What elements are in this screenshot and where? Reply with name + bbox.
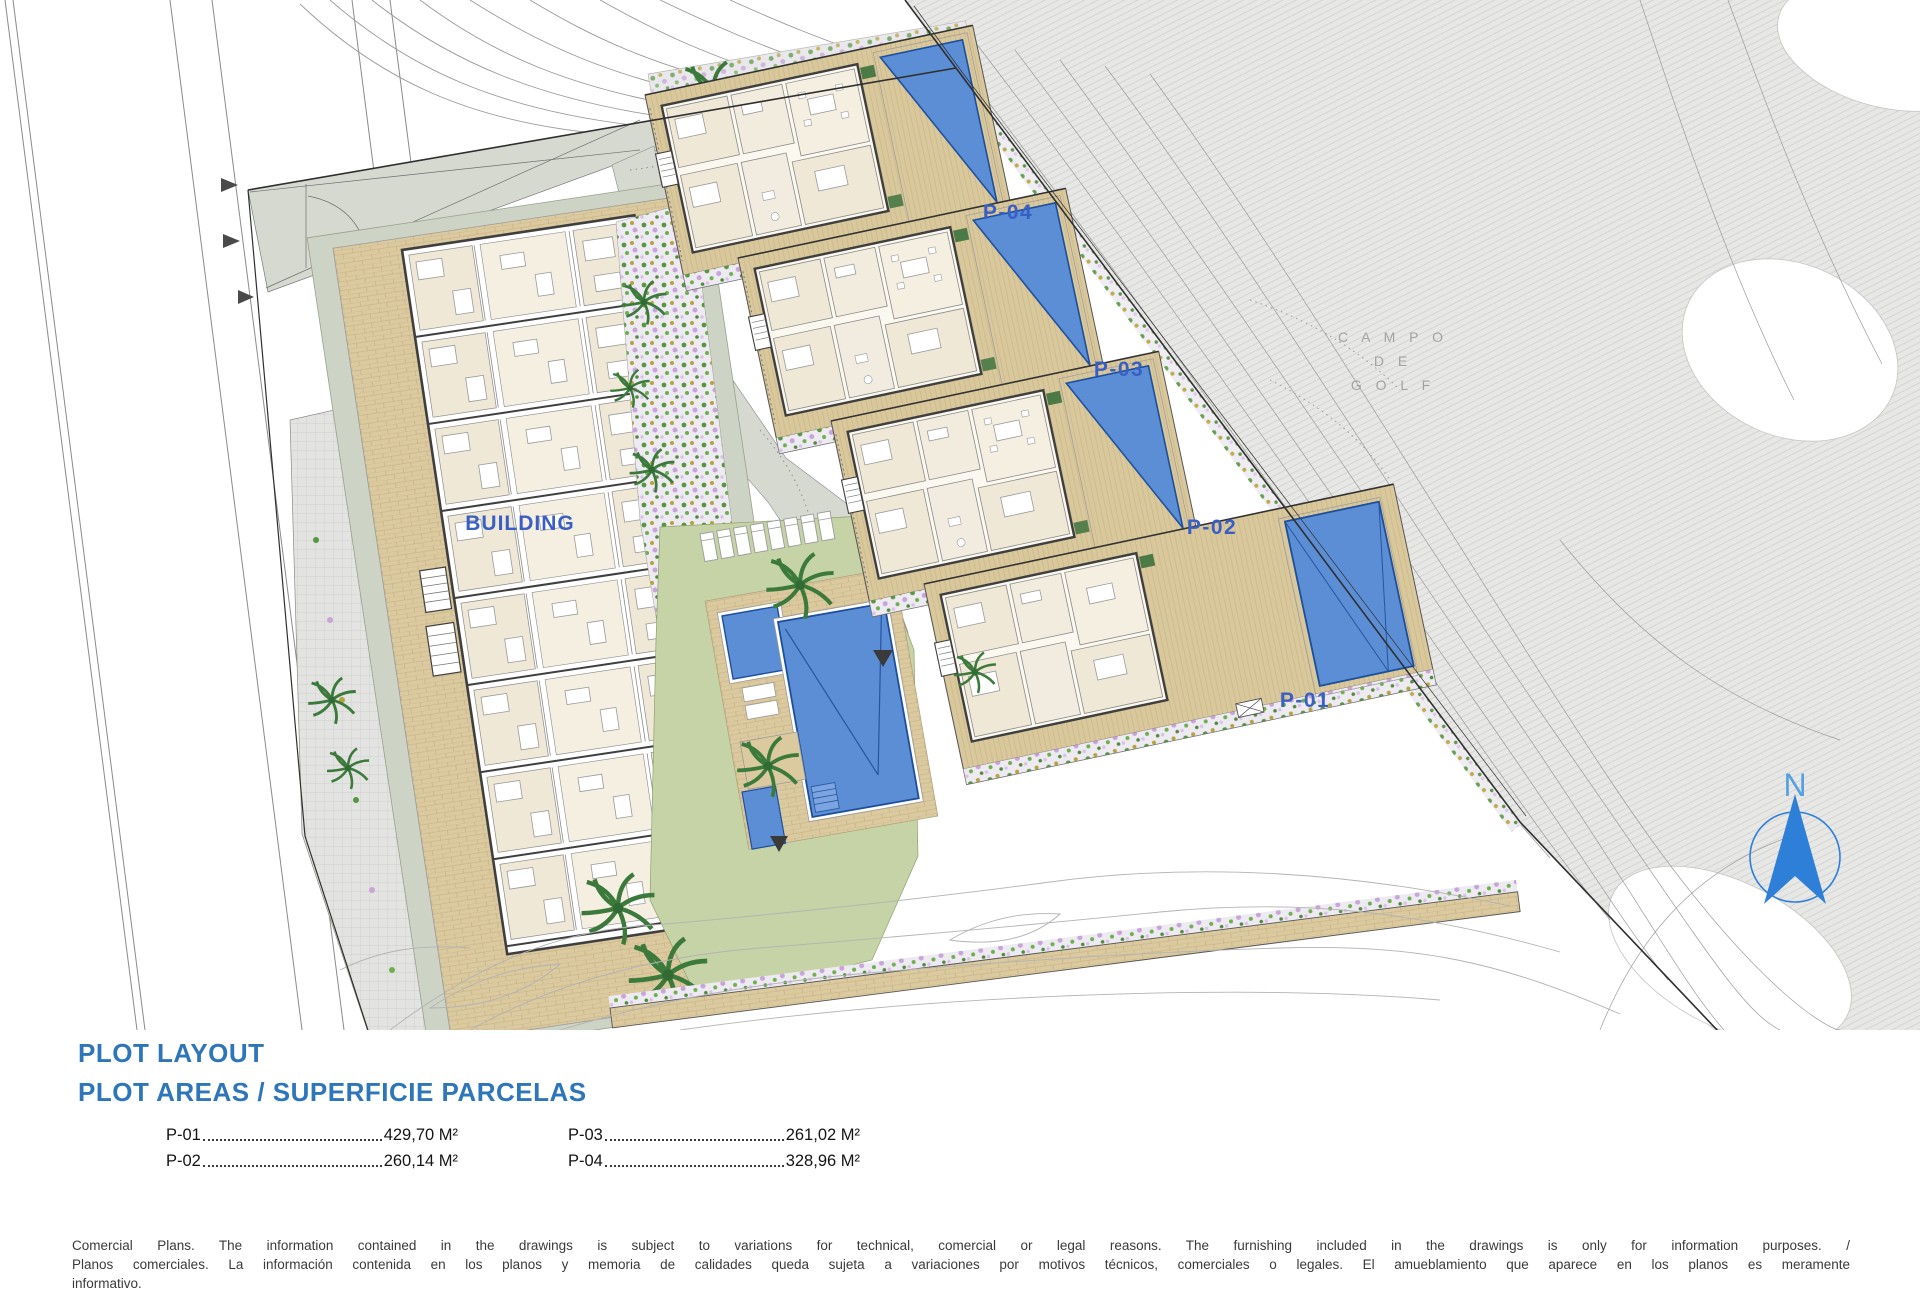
plot-area-value: 261,02 M² — [786, 1126, 860, 1145]
golf-label-line1: C A M P O — [1338, 329, 1448, 345]
pool-steps — [811, 783, 839, 813]
plot-area-label: P-01 — [166, 1126, 201, 1145]
plot-label-p02: P-02 — [1187, 516, 1237, 539]
golf-label-line3: G O L F — [1351, 377, 1435, 393]
plot-area-label: P-02 — [166, 1152, 201, 1171]
disclaimer-line-es: Planos comerciales. La información conte… — [72, 1255, 1850, 1274]
legend-subtitle: PLOT AREAS / SUPERFICIE PARCELAS — [78, 1077, 1178, 1108]
golf-label-line2: D E — [1374, 353, 1412, 369]
dotted-leader — [203, 1165, 382, 1167]
plot-area-entry: P-03 261,02 M² — [568, 1126, 860, 1145]
disclaimer: Comercial Plans. The information contain… — [72, 1236, 1850, 1293]
plot-area-label: P-04 — [568, 1152, 603, 1171]
building-label: BUILDING — [465, 512, 575, 535]
disclaimer-line-en: Comercial Plans. The information contain… — [72, 1236, 1850, 1255]
legend: PLOT LAYOUT PLOT AREAS / SUPERFICIE PARC… — [78, 1038, 1178, 1171]
plot-label-p04: P-04 — [983, 201, 1033, 224]
plot-area-value: 328,96 M² — [786, 1152, 860, 1171]
legend-title: PLOT LAYOUT — [78, 1038, 1178, 1069]
plot-label-p01: P-01 — [1280, 689, 1330, 712]
plot-area-value: 429,70 M² — [384, 1126, 458, 1145]
dotted-leader — [203, 1139, 382, 1141]
site-plan-drawing: C A M P O D E G O L F — [0, 0, 1920, 1030]
dotted-leader — [605, 1165, 784, 1167]
plot-area-value: 260,14 M² — [384, 1152, 458, 1171]
dotted-leader — [605, 1139, 784, 1141]
plot-area-entry: P-04 328,96 M² — [568, 1152, 860, 1171]
plot-area-entry: P-01 429,70 M² — [166, 1126, 458, 1145]
stairwell — [420, 567, 452, 612]
north-label: N — [1783, 767, 1806, 803]
plot-area-list: P-01 429,70 M² P-03 261,02 M² P-02 260,1… — [166, 1126, 1178, 1171]
plot-label-p03: P-03 — [1094, 358, 1144, 381]
plot-area-label: P-03 — [568, 1126, 603, 1145]
plot-area-entry: P-02 260,14 M² — [166, 1152, 458, 1171]
site-plan-page: C A M P O D E G O L F — [0, 0, 1920, 1280]
disclaimer-line-es2: informativo. — [72, 1274, 1850, 1293]
